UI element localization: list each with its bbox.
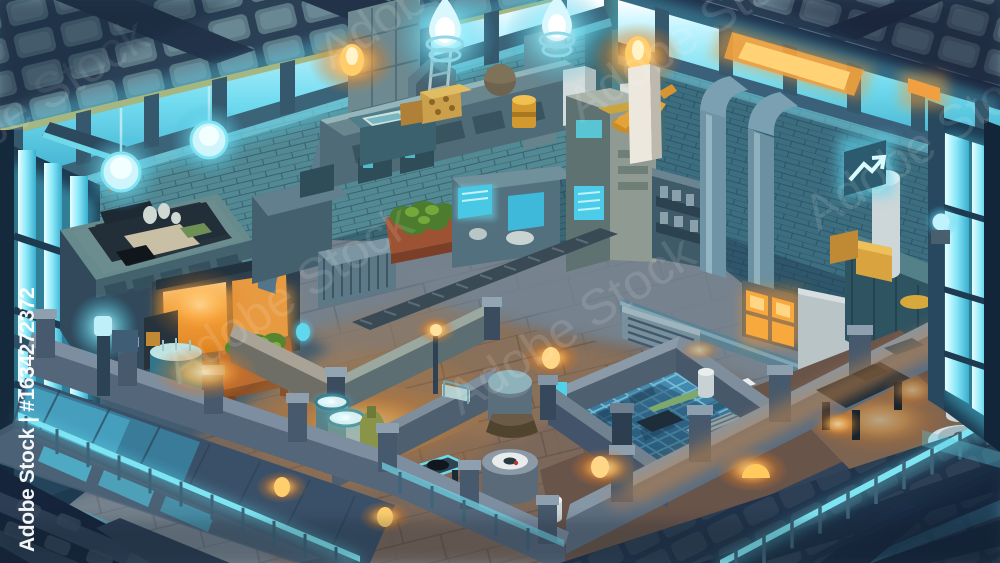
- svg-text:Adobe Stock | #1634272372: Adobe Stock | #1634272372: [16, 288, 39, 552]
